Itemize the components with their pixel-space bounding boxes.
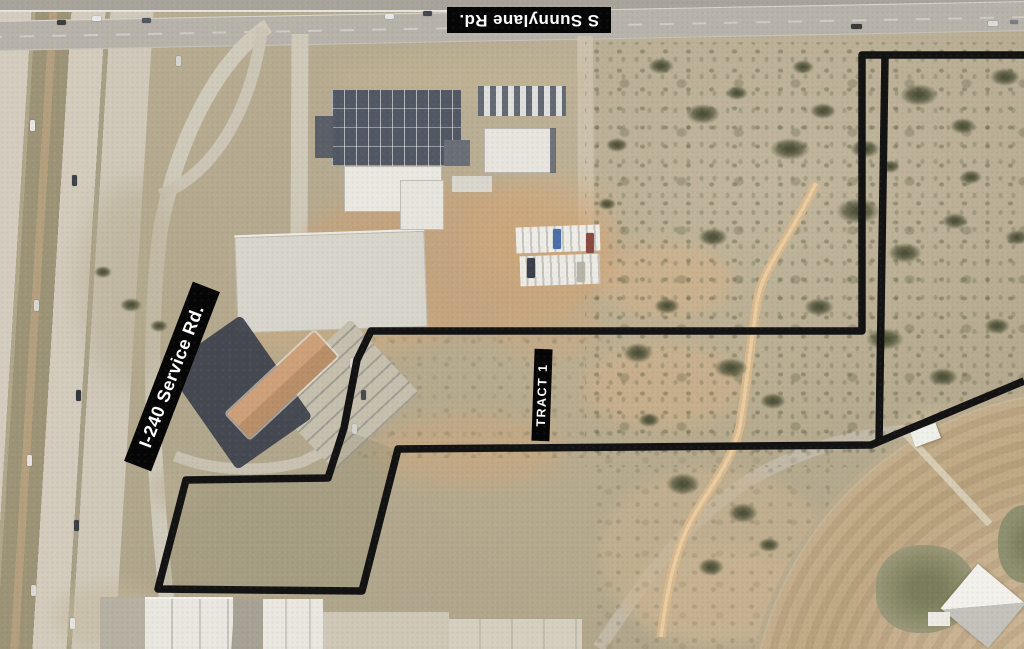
boundary-svg: [0, 0, 1024, 649]
tract1-boundary-line: [158, 55, 1024, 591]
aerial-map: S Sunnylane Rd. I-240 Service Rd. TRACT …: [0, 0, 1024, 649]
label-tract-1: TRACT 1: [531, 349, 552, 442]
label-sunnylane-rd: S Sunnylane Rd.: [447, 7, 611, 33]
tract-divider-line: [879, 57, 885, 442]
